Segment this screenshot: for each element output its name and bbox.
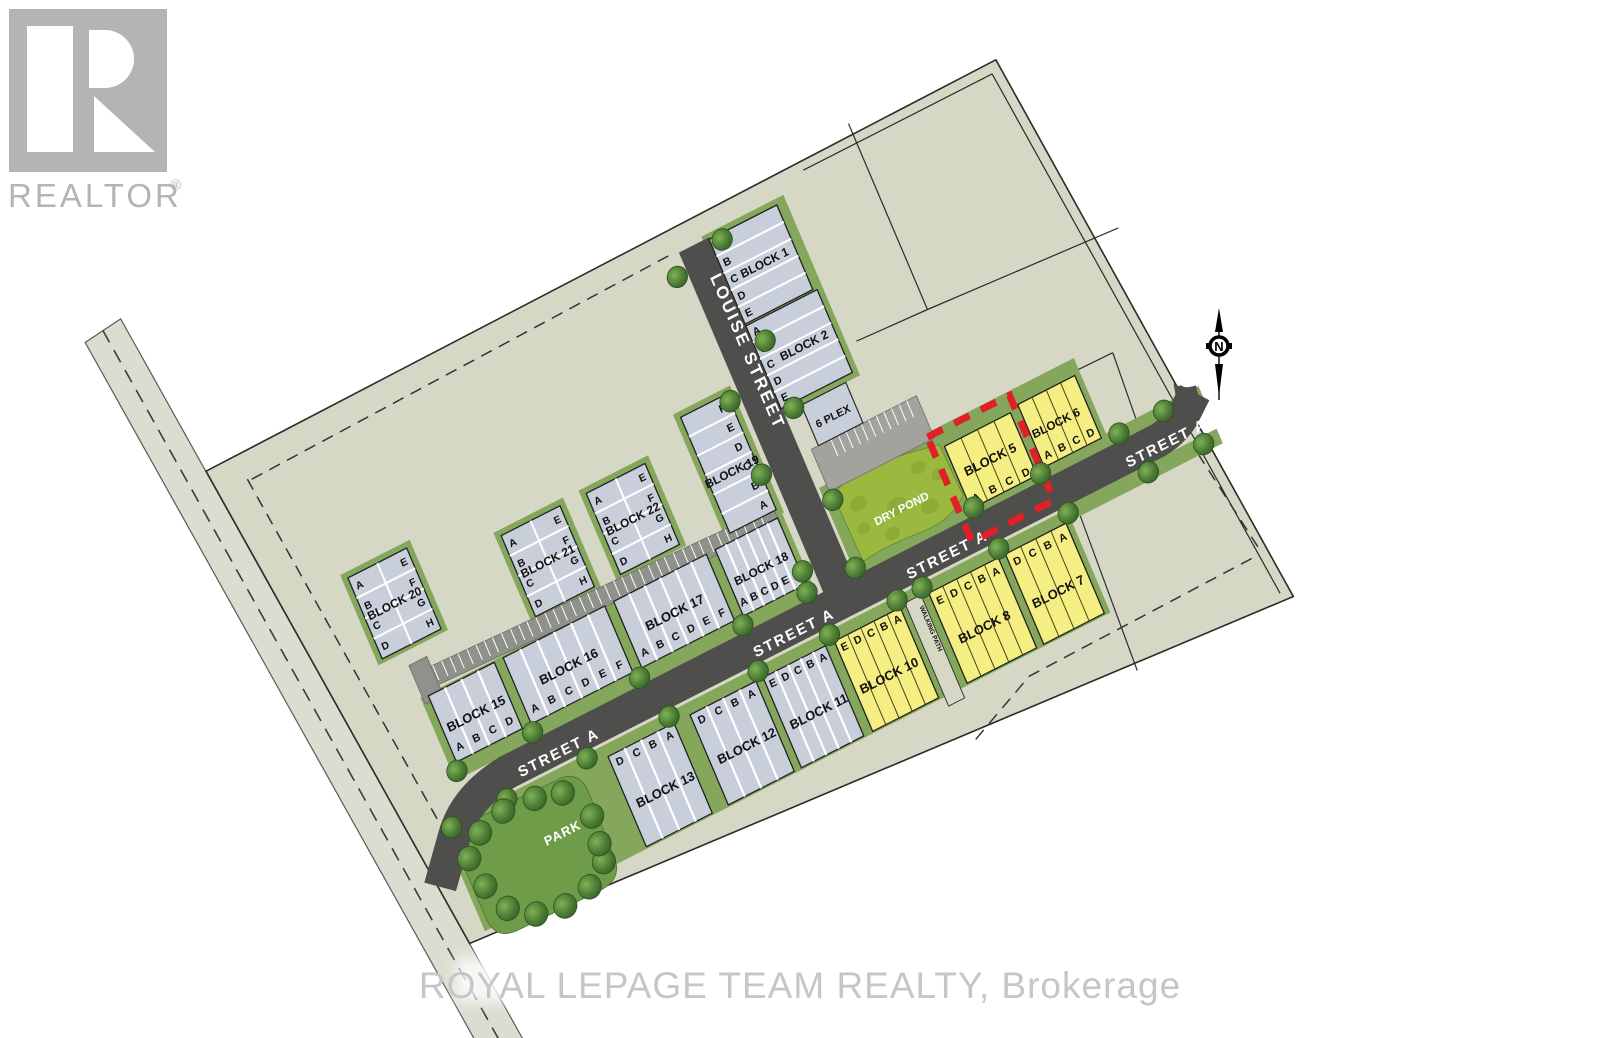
- svg-text:N: N: [1214, 339, 1223, 354]
- svg-text:ROYAL LEPAGE TEAM REALTY, Brok: ROYAL LEPAGE TEAM REALTY, Brokerage: [419, 965, 1181, 1006]
- svg-text:®: ®: [170, 177, 181, 194]
- svg-text:REALTOR: REALTOR: [8, 177, 182, 214]
